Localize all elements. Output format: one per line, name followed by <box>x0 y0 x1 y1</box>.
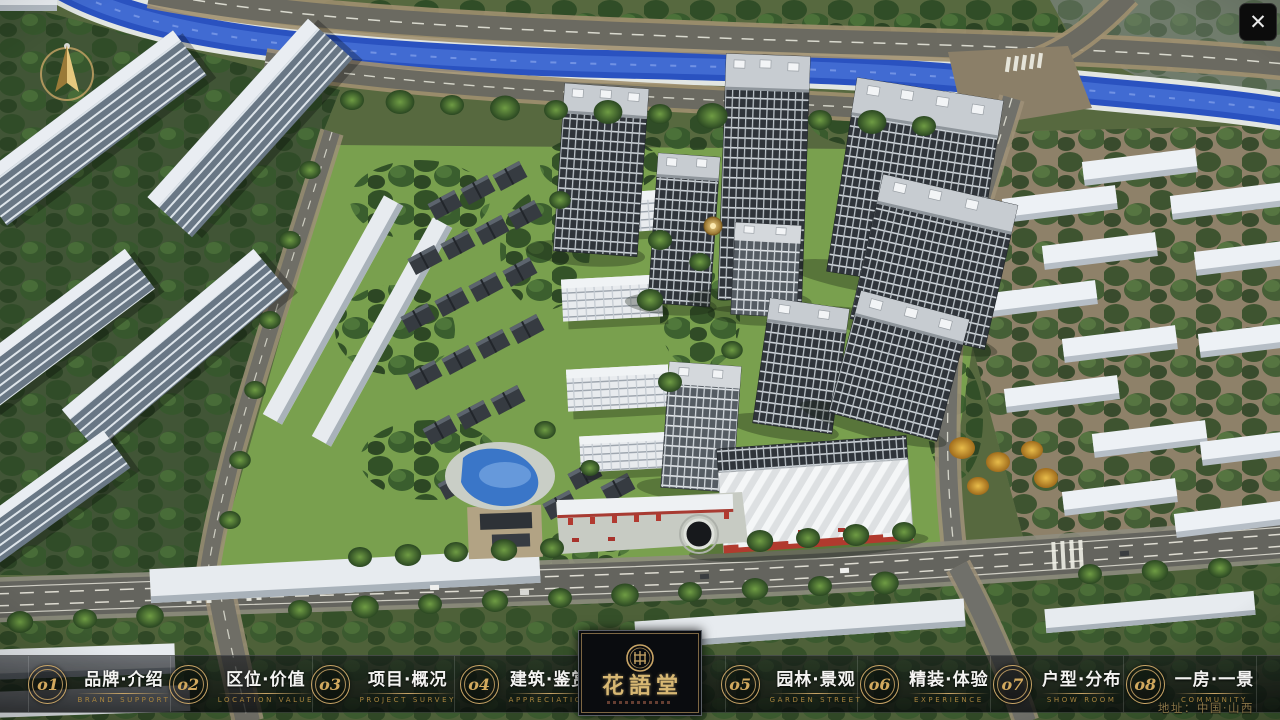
nav-badge: o1 <box>28 665 67 704</box>
nav-item-interior-experience[interactable]: o6 精装·体验EXPERIENCE <box>858 656 991 712</box>
nav-item-architecture[interactable]: o4 建筑·鉴赏APPRECIATION <box>455 656 597 712</box>
project-address: 地址：中国·山西 <box>1158 700 1254 716</box>
nav-number: o1 <box>37 675 59 694</box>
nav-badge: o3 <box>311 665 350 704</box>
nav-item-landscape[interactable]: o5 园林·景观GARDEN STREET <box>725 656 859 712</box>
nav-number: o2 <box>177 675 199 694</box>
nav-badge: o6 <box>860 665 899 704</box>
nav-number: o3 <box>319 675 341 694</box>
nav-divider <box>1042 693 1121 694</box>
nav-item-brand-intro[interactable]: o1 品牌·介绍BRAND SUPPORT <box>28 656 171 712</box>
masterplan-render[interactable] <box>0 0 1280 720</box>
nav-label-zh: 园林·景观 <box>776 665 855 690</box>
nav-badge: o7 <box>993 665 1032 704</box>
nav-label-en: GARDEN STREET <box>770 696 863 704</box>
nav-group-left: o1 品牌·介绍BRAND SUPPORT o2 区位·价值LOCATION V… <box>28 656 597 712</box>
nav-label-en: EXPERIENCE <box>914 696 984 704</box>
seal-icon <box>625 643 655 673</box>
nav-divider <box>218 693 314 694</box>
nav-label-zh: 项目·概况 <box>368 665 447 690</box>
nav-divider <box>360 693 456 694</box>
close-icon: ✕ <box>1249 10 1267 34</box>
nav-badge: o5 <box>721 665 760 704</box>
compass-icon <box>34 36 100 108</box>
nav-number: o4 <box>468 675 490 694</box>
nav-number: o7 <box>1002 675 1024 694</box>
nav-label-en: BRAND SUPPORT <box>77 696 170 704</box>
nav-badge: o2 <box>169 665 208 704</box>
nav-divider <box>1175 693 1254 694</box>
project-name: 花語堂 <box>597 675 683 697</box>
nav-badge: o4 <box>460 665 499 704</box>
vignette <box>0 0 1280 720</box>
nav-label-zh: 精装·体验 <box>909 665 988 690</box>
logo-subtext <box>607 701 673 704</box>
nav-divider <box>909 693 988 694</box>
nav-label-en: SHOW ROOM <box>1047 696 1117 704</box>
nav-label-zh: 区位·价值 <box>226 665 305 690</box>
nav-label-zh: 一房·一景 <box>1175 665 1254 690</box>
nav-number: o6 <box>869 675 891 694</box>
compass <box>34 36 100 108</box>
nav-item-floorplans[interactable]: o7 户型·分布SHOW ROOM <box>991 656 1124 712</box>
nav-label-zh: 品牌·介绍 <box>84 665 163 690</box>
sandbox-app-window: ✕ o1 品牌·介绍BRAND SUPPORT o2 区位·价值LOCATION… <box>0 0 1280 720</box>
close-button[interactable]: ✕ <box>1239 3 1277 41</box>
project-logo[interactable]: 花語堂 <box>578 630 702 716</box>
nav-label-en: PROJECT SURVEY <box>360 696 456 704</box>
nav-divider <box>770 693 863 694</box>
nav-item-project-overview[interactable]: o3 项目·概况PROJECT SURVEY <box>313 656 455 712</box>
nav-badge: o8 <box>1126 665 1165 704</box>
nav-label-zh: 户型·分布 <box>1042 665 1121 690</box>
nav-number: o8 <box>1134 675 1156 694</box>
nav-item-location-value[interactable]: o2 区位·价值LOCATION VALUE <box>171 656 313 712</box>
nav-label-en: LOCATION VALUE <box>218 696 314 704</box>
nav-divider <box>77 693 170 694</box>
nav-number: o5 <box>729 675 751 694</box>
